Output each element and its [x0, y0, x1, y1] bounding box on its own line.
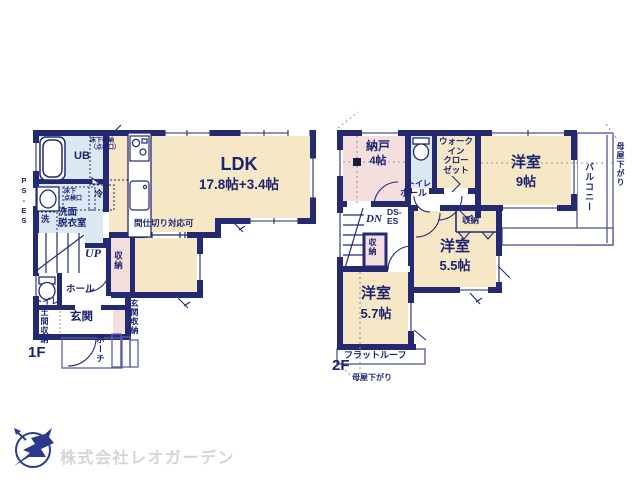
- room57-label: 洋室: [345, 286, 407, 303]
- room57-size-label: 5.7帖: [345, 307, 407, 322]
- floorplan-canvas: PS-ES UB 床下収納 （点検口） 床下 点検口 冷 洗 洗面 脱衣室 LD…: [0, 0, 640, 480]
- bathtub-icon: [40, 137, 65, 180]
- fridge-label: 冷: [94, 189, 103, 199]
- stairs-2f: [343, 208, 364, 268]
- unit-bath-label: UB: [74, 150, 90, 162]
- eave-right-label: 母屋下がり: [615, 142, 624, 187]
- underfloor-storage-label: 床下収納 （点検口）: [90, 138, 120, 152]
- stair-closet-label: 収納: [367, 238, 376, 256]
- floor1-label: 1F: [28, 345, 46, 362]
- sink-icon: [130, 181, 149, 210]
- porch-label: ポーチ: [95, 335, 105, 364]
- flat-roof-label: フラットルーフ: [344, 350, 406, 360]
- floorplan-drawing: [0, 0, 640, 480]
- stove-icon: [130, 136, 149, 161]
- pipe-space-label: PS-ES: [19, 176, 27, 226]
- washer-label: 洗: [41, 215, 50, 225]
- toilet-label-1f: トイレ: [34, 297, 60, 307]
- room55-closet-label: 収納: [462, 216, 479, 226]
- washroom-label: 洗面 脱衣室: [58, 208, 87, 229]
- walk-in-closet-label: ウォーク イン クロー ゼット: [436, 137, 476, 175]
- stairs-1f: [36, 233, 85, 273]
- company-name: 株式会社レオガーデン: [60, 450, 235, 468]
- ldk-label: LDK: [200, 154, 278, 174]
- room9-label: 洋室: [495, 155, 557, 172]
- partition-note-label: 間仕切り対応可: [134, 219, 194, 229]
- eave-bottom-label: 母屋下がり: [352, 374, 392, 383]
- doma-storage-label: 土間収納: [39, 308, 48, 344]
- room55-label: 洋室: [425, 239, 485, 256]
- room9-size-label: 9帖: [495, 175, 557, 190]
- closet-strip-label: 収納: [113, 251, 123, 270]
- ldk-size-label: 17.8帖+3.4帖: [168, 177, 310, 192]
- balcony-label: バルコニー: [584, 162, 594, 212]
- entrance-storage-box: [113, 310, 125, 333]
- entrance-storage-label: 玄関収納: [129, 299, 138, 335]
- hall-label-1f: ホール: [66, 285, 95, 296]
- stairs-down-label: DN: [366, 213, 382, 225]
- stairs-up-label: UP: [85, 247, 101, 260]
- company-logo-icon: [14, 428, 54, 467]
- hall-label-2f: ホール: [400, 188, 427, 198]
- tatami-room: [133, 235, 197, 295]
- entrance-label: 玄関: [70, 311, 93, 324]
- storeroom-size-label: 4帖: [355, 155, 401, 167]
- storeroom-label: 納戸: [355, 140, 401, 153]
- duct-space-label: DS- ES: [387, 208, 402, 226]
- floor2-label: 2F: [332, 358, 350, 375]
- room55-size-label: 5.5帖: [425, 259, 485, 274]
- washbasin-icon: [37, 187, 59, 211]
- underfloor-hatch-label: 床下 点検口: [64, 189, 82, 203]
- toilet-icon-2f: [413, 138, 429, 160]
